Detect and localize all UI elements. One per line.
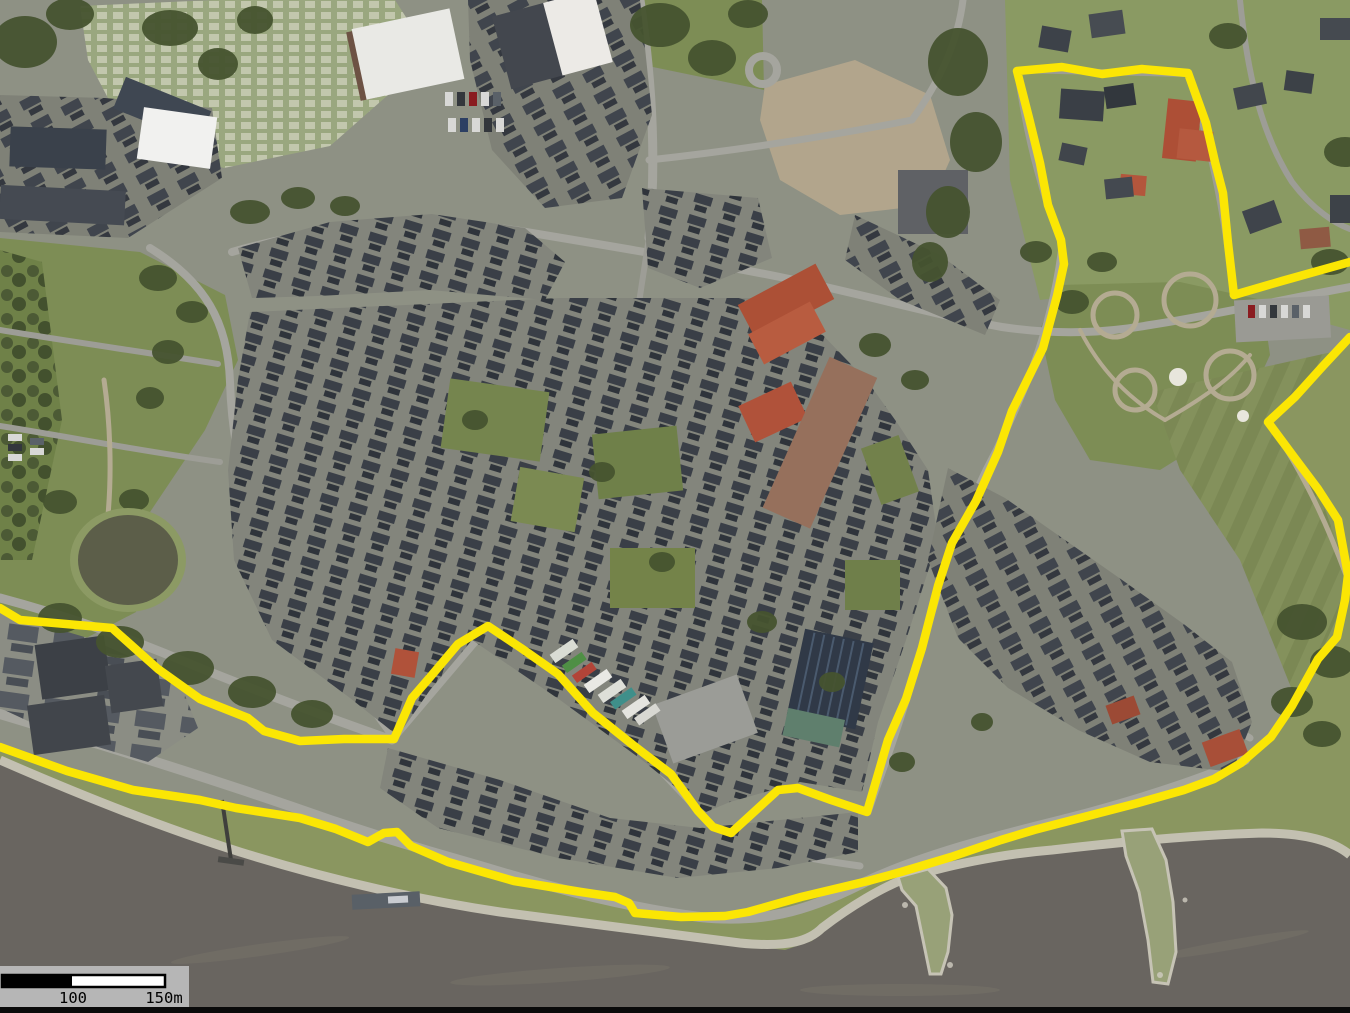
scale-label-150m: 150m (145, 989, 182, 1007)
scale-label-100: 100 (59, 989, 87, 1007)
scale-bar-filled-segment (2, 975, 72, 987)
scale-bar: 100 150m (0, 966, 189, 1007)
pond (70, 508, 186, 612)
park-white-circle (1169, 368, 1187, 386)
image-bottom-edge (0, 1007, 1350, 1013)
school-white-roof (137, 107, 218, 169)
map-canvas[interactable]: 100 150m (0, 0, 1350, 1013)
park-parking-lot (1234, 296, 1331, 343)
aerial-basemap: 100 150m (0, 0, 1350, 1013)
